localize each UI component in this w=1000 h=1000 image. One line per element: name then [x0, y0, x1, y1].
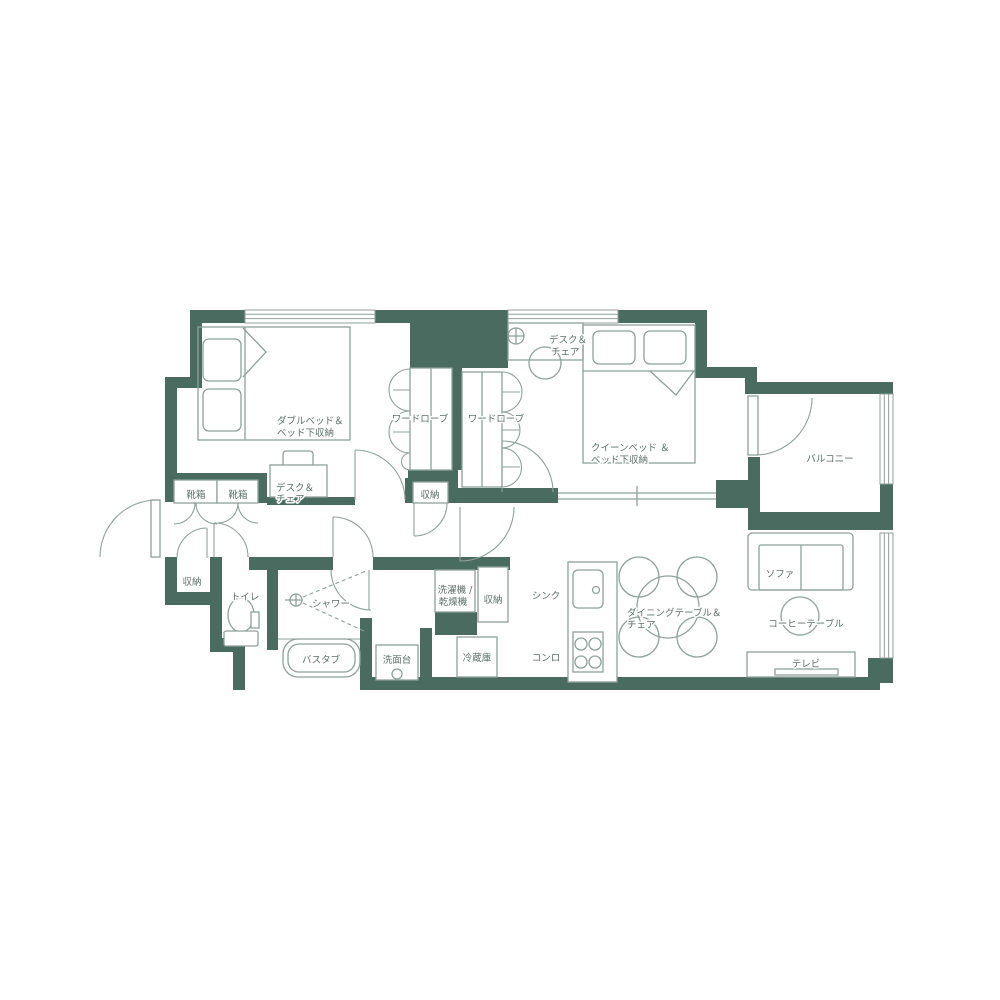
desk-chair1-label-2: チェア	[276, 494, 305, 505]
wall-bath-left	[233, 645, 245, 690]
wall-wardrobe-divider	[452, 360, 462, 470]
wall-toilet-right	[267, 562, 278, 650]
wall-left-below-entry	[165, 557, 177, 592]
window-bedroom1	[245, 310, 375, 323]
stove-label: コンロ	[532, 653, 561, 664]
washbasin-label: 洗面台	[383, 654, 412, 666]
wall-ldk-corner	[868, 658, 893, 683]
hall-storage-label: 収納	[420, 489, 439, 501]
wall-bed1-bottom-step	[258, 473, 267, 503]
wall-basin-right	[420, 628, 432, 683]
balcony-door-arc	[755, 398, 812, 455]
dining-table-label-2: チェア	[627, 620, 656, 631]
wall-toilet-left	[210, 557, 222, 647]
living-dining	[619, 533, 855, 677]
queen-bed-label: クイーンベッド ＆	[591, 443, 670, 454]
shoe-box-door-arcs	[174, 503, 258, 524]
kitchen	[568, 562, 617, 682]
wardrobe-left-label: ワードローブ	[392, 413, 449, 425]
laundry-storage-label: 収納	[483, 594, 502, 606]
hall-storage-door-arc	[414, 503, 447, 536]
wall-left-step	[165, 377, 202, 388]
front-door-arc	[100, 500, 157, 557]
shoe-box-left-label: 靴箱	[186, 489, 205, 501]
dining-table-label: ダイニングテーブル＆	[627, 607, 721, 619]
double-bed-label-2: ベッド下収納	[277, 427, 334, 439]
pillow	[203, 339, 241, 381]
double-bed-label: ダブルベッド＆	[277, 415, 344, 427]
washer-dryer-label-2: 乾燥機	[439, 596, 468, 608]
ldk-door-arc	[460, 507, 514, 561]
wardrobe-right-label: ワードローブ	[468, 413, 525, 425]
washer-dryer-label: 洗濯機 /	[438, 584, 474, 596]
toilet-bowl	[228, 598, 254, 632]
sofa-label: ソファ	[766, 569, 795, 580]
wall-entry-storage-bottom	[165, 592, 213, 605]
bedroom1-door-arc	[355, 450, 405, 500]
wall-under-washer	[435, 612, 477, 635]
pillow	[644, 331, 686, 364]
shower-door-arc-out	[333, 517, 373, 557]
pillow	[593, 331, 635, 364]
wall-corridor-top-right	[458, 488, 558, 503]
desk-chair2-label: デスク＆	[549, 334, 587, 346]
wall-bottom	[361, 677, 880, 690]
desk-chair1-label: デスク＆	[276, 482, 314, 494]
dining-chair	[677, 557, 717, 597]
window-living-right	[880, 533, 893, 658]
wall-center-block	[410, 310, 508, 368]
desk-chair2-label-2: チェア	[551, 347, 580, 358]
window-balcony-right	[880, 394, 893, 484]
shower-label: シャワー	[312, 599, 350, 610]
balcony-door-leaf	[748, 396, 758, 455]
dining-chair	[619, 557, 659, 597]
coffee-table-label: コーヒーテーブル	[768, 618, 844, 630]
floor-plan-page: ダブルベッド＆ ベッド下収納 デスク＆ チェア 靴箱 靴箱 ワードローブ ワード…	[0, 0, 1000, 1000]
bathtub-label: バスタブ	[302, 654, 341, 666]
blanket-fold	[243, 328, 266, 377]
toilet-tank	[224, 631, 258, 646]
toilet-label: トイレ	[231, 592, 260, 603]
wall-balcony-bottom	[748, 512, 893, 530]
entry-storage-door-arc	[177, 528, 207, 558]
fridge-label: 冷蔵庫	[463, 652, 492, 664]
dining-chair	[677, 617, 717, 657]
wall-bed1-bottom-left	[173, 473, 260, 480]
bedroom1	[198, 327, 350, 497]
bedroom2	[508, 323, 695, 463]
balcony-label: バルコニー	[806, 454, 853, 465]
toilet-arm	[251, 612, 259, 628]
wall-partition-end	[716, 480, 752, 508]
shoe-box-right-label: 靴箱	[228, 489, 247, 501]
window-bedroom2	[508, 310, 618, 323]
wall-bed1-left-upper	[190, 310, 202, 388]
wall-bed2-top-right	[618, 310, 707, 323]
queen-bed-label-2: ベッド下収納	[591, 454, 648, 466]
sink-label: シンク	[532, 591, 561, 602]
toilet-door-arc	[214, 523, 248, 557]
apartment-floor-plan: ダブルベッド＆ ベッド下収納 デスク＆ チェア 靴箱 靴箱 ワードローブ ワード…	[0, 0, 1000, 1000]
entry-storage-label: 収納	[182, 576, 201, 588]
wall-balcony-top	[745, 382, 893, 394]
sliding-partition	[558, 486, 716, 506]
wall-corridor-bottom-1	[249, 557, 333, 570]
blanket-fold	[650, 371, 694, 395]
tv-label: テレビ	[792, 659, 821, 670]
pillow	[203, 389, 241, 431]
wall-bed2-right	[695, 323, 707, 372]
front-door-leaf	[151, 500, 160, 557]
wall-bed1-top-right	[375, 310, 415, 323]
shower-spray-line	[303, 571, 366, 597]
balcony	[748, 396, 812, 455]
